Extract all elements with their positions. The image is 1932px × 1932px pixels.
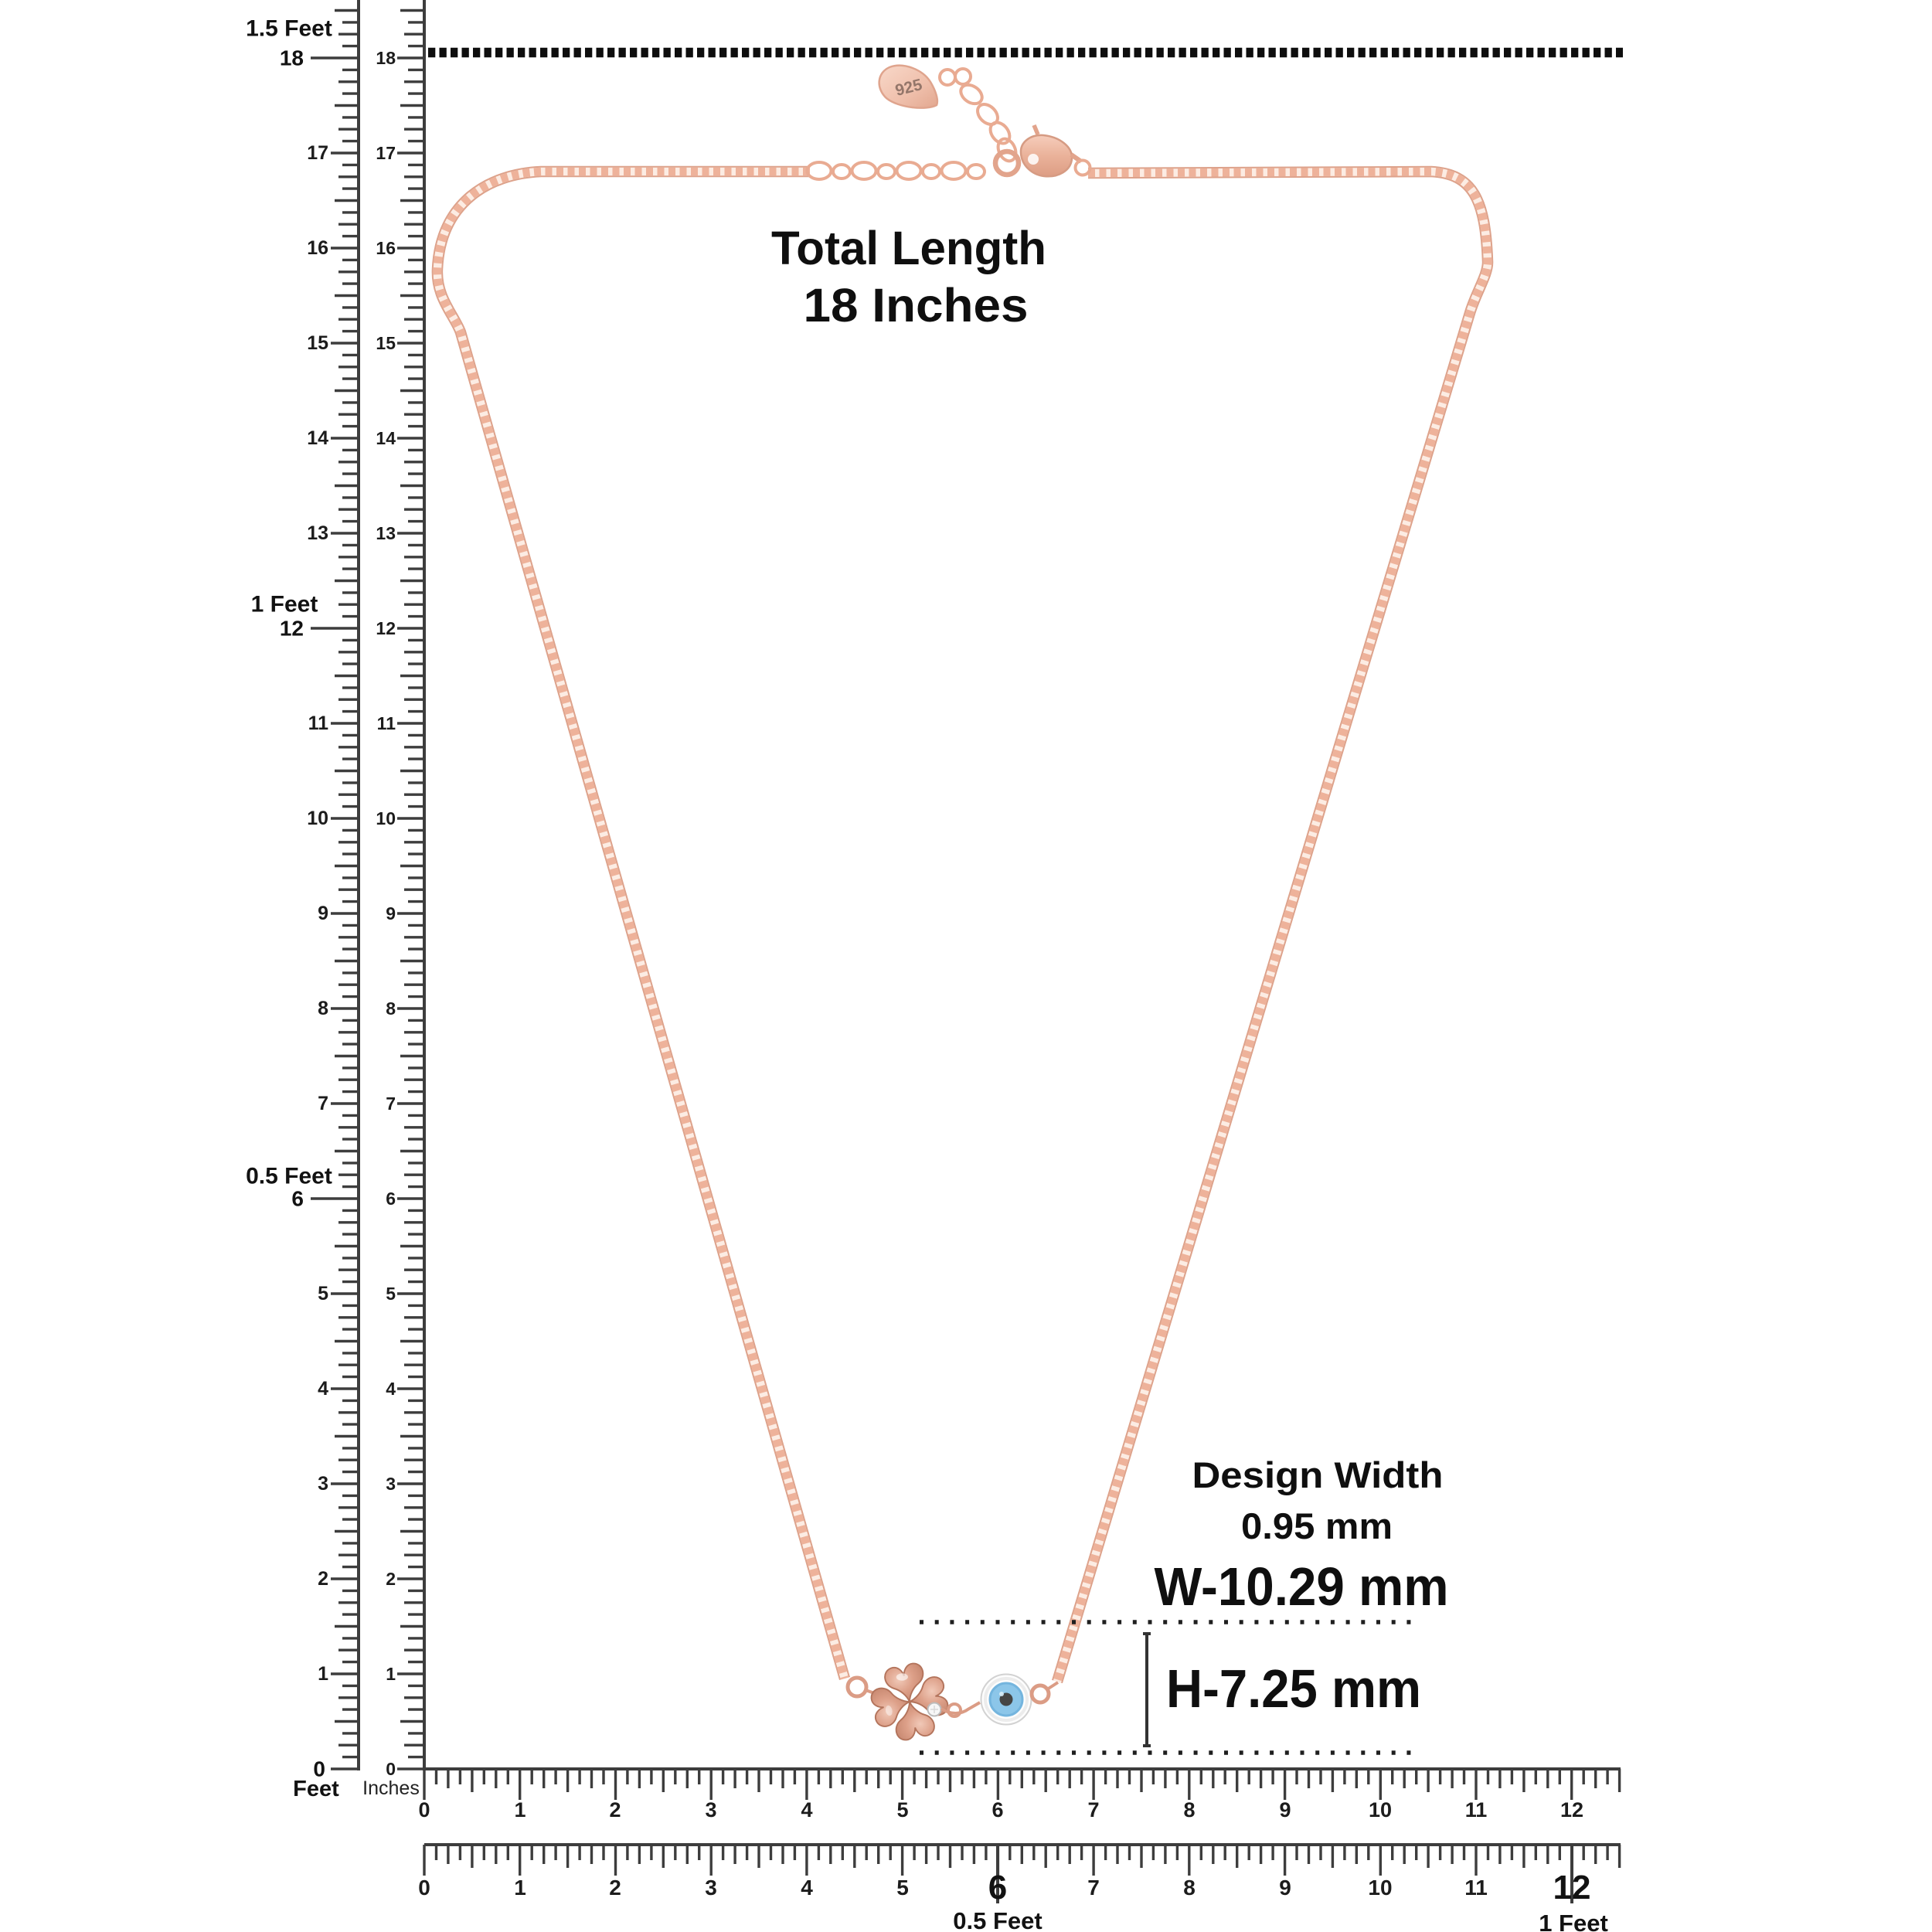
svg-text:4: 4 — [318, 1378, 328, 1400]
svg-text:9: 9 — [386, 903, 396, 923]
svg-text:10: 10 — [1368, 1876, 1392, 1900]
svg-text:2: 2 — [318, 1568, 328, 1590]
svg-text:7: 7 — [318, 1093, 328, 1114]
svg-text:Inches: Inches — [362, 1777, 420, 1799]
svg-text:0: 0 — [418, 1798, 430, 1821]
svg-text:11: 11 — [1465, 1798, 1488, 1821]
svg-text:1 Feet: 1 Feet — [251, 592, 318, 617]
svg-text:5: 5 — [896, 1876, 909, 1900]
svg-text:12: 12 — [376, 618, 396, 638]
svg-text:12: 12 — [280, 617, 304, 641]
svg-text:13: 13 — [307, 522, 328, 544]
svg-text:6: 6 — [992, 1798, 1003, 1821]
svg-text:18 Inches: 18 Inches — [804, 279, 1029, 332]
svg-text:8: 8 — [318, 998, 328, 1019]
svg-text:14: 14 — [307, 427, 328, 449]
svg-text:0: 0 — [418, 1876, 430, 1900]
svg-text:4: 4 — [801, 1876, 813, 1900]
svg-text:Total Length: Total Length — [771, 222, 1046, 274]
svg-text:10: 10 — [307, 808, 328, 829]
svg-text:Feet: Feet — [293, 1777, 339, 1801]
svg-text:1: 1 — [318, 1663, 328, 1685]
svg-text:16: 16 — [307, 237, 328, 259]
svg-text:1: 1 — [514, 1876, 526, 1900]
svg-text:2: 2 — [609, 1798, 621, 1821]
svg-text:5: 5 — [318, 1283, 328, 1304]
svg-text:18: 18 — [376, 48, 396, 68]
svg-text:11: 11 — [377, 713, 396, 733]
svg-text:1.5 Feet: 1.5 Feet — [246, 16, 332, 42]
svg-text:8: 8 — [386, 998, 396, 1019]
svg-text:2: 2 — [386, 1569, 396, 1589]
svg-text:0.95 mm: 0.95 mm — [1241, 1505, 1393, 1546]
svg-text:9: 9 — [1279, 1798, 1291, 1821]
svg-text:7: 7 — [386, 1094, 396, 1114]
svg-text:11: 11 — [1464, 1876, 1488, 1900]
svg-text:15: 15 — [307, 332, 328, 354]
svg-text:15: 15 — [376, 333, 396, 353]
svg-text:11: 11 — [308, 713, 329, 734]
svg-text:13: 13 — [376, 523, 396, 543]
svg-text:1: 1 — [514, 1798, 526, 1821]
svg-text:12: 12 — [1560, 1798, 1583, 1821]
svg-text:8: 8 — [1183, 1798, 1195, 1821]
svg-text:W-10.29 mm: W-10.29 mm — [1155, 1556, 1449, 1617]
svg-text:9: 9 — [318, 903, 328, 924]
svg-text:5: 5 — [386, 1284, 396, 1304]
svg-text:8: 8 — [1183, 1876, 1196, 1900]
svg-text:5: 5 — [896, 1798, 908, 1821]
svg-text:14: 14 — [376, 428, 396, 448]
svg-text:10: 10 — [376, 808, 396, 828]
svg-text:4: 4 — [386, 1379, 396, 1399]
svg-text:17: 17 — [376, 143, 396, 163]
svg-text:0: 0 — [386, 1759, 396, 1779]
svg-text:1: 1 — [386, 1664, 396, 1684]
svg-text:3: 3 — [705, 1798, 716, 1821]
svg-text:9: 9 — [1279, 1876, 1291, 1900]
svg-text:4: 4 — [801, 1798, 812, 1821]
svg-text:18: 18 — [280, 46, 304, 70]
svg-text:1 Feet: 1 Feet — [1539, 1910, 1608, 1932]
svg-text:12: 12 — [1553, 1869, 1591, 1906]
svg-text:Design Width: Design Width — [1192, 1454, 1444, 1495]
svg-text:6: 6 — [291, 1187, 304, 1211]
svg-text:16: 16 — [376, 238, 396, 258]
svg-text:3: 3 — [705, 1876, 717, 1900]
svg-text:6: 6 — [988, 1869, 1007, 1906]
svg-text:10: 10 — [1369, 1798, 1392, 1821]
svg-text:H-7.25 mm: H-7.25 mm — [1166, 1658, 1421, 1719]
svg-text:0.5 Feet: 0.5 Feet — [246, 1164, 332, 1189]
svg-text:7: 7 — [1087, 1876, 1100, 1900]
svg-text:6: 6 — [386, 1189, 396, 1209]
svg-text:0.5 Feet: 0.5 Feet — [953, 1907, 1042, 1932]
svg-text:3: 3 — [386, 1474, 396, 1494]
svg-text:17: 17 — [307, 142, 328, 164]
svg-text:3: 3 — [318, 1473, 328, 1495]
svg-text:2: 2 — [609, 1876, 621, 1900]
svg-text:7: 7 — [1087, 1798, 1099, 1821]
